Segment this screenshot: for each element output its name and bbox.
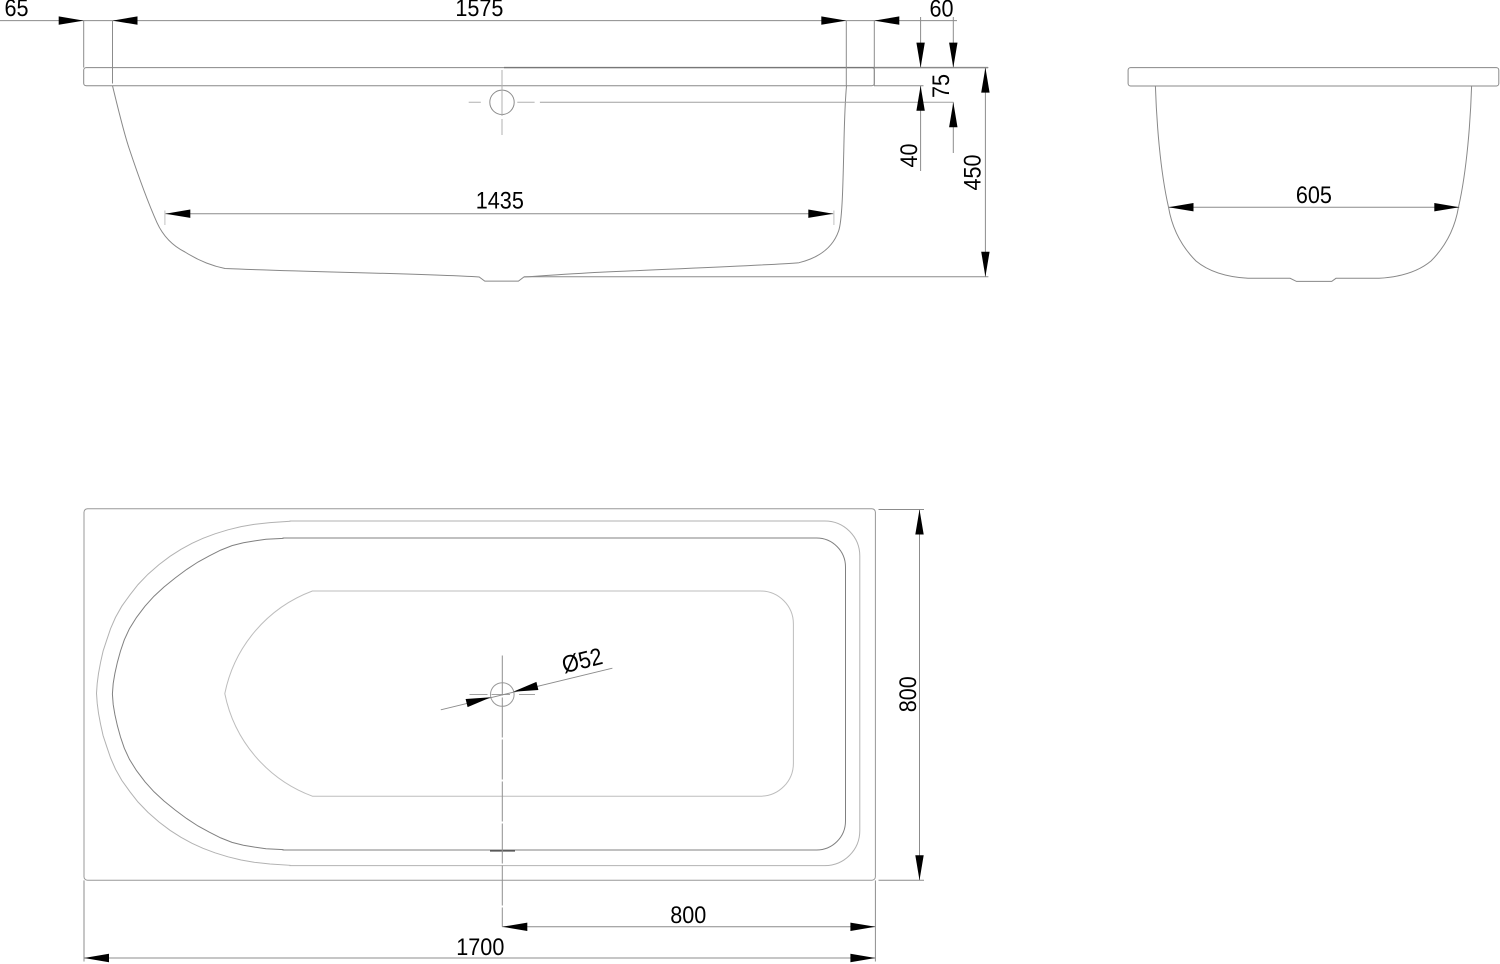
svg-text:800: 800	[895, 676, 922, 712]
svg-text:1700: 1700	[456, 934, 504, 961]
svg-text:1575: 1575	[455, 0, 503, 22]
svg-text:800: 800	[670, 902, 706, 929]
svg-text:1435: 1435	[476, 188, 524, 215]
svg-text:60: 60	[929, 0, 953, 23]
svg-text:605: 605	[1296, 182, 1332, 209]
svg-text:Ø52: Ø52	[559, 643, 605, 679]
svg-text:450: 450	[960, 154, 987, 190]
svg-text:65: 65	[4, 0, 28, 22]
svg-text:40: 40	[896, 143, 923, 167]
svg-text:75: 75	[928, 74, 955, 98]
